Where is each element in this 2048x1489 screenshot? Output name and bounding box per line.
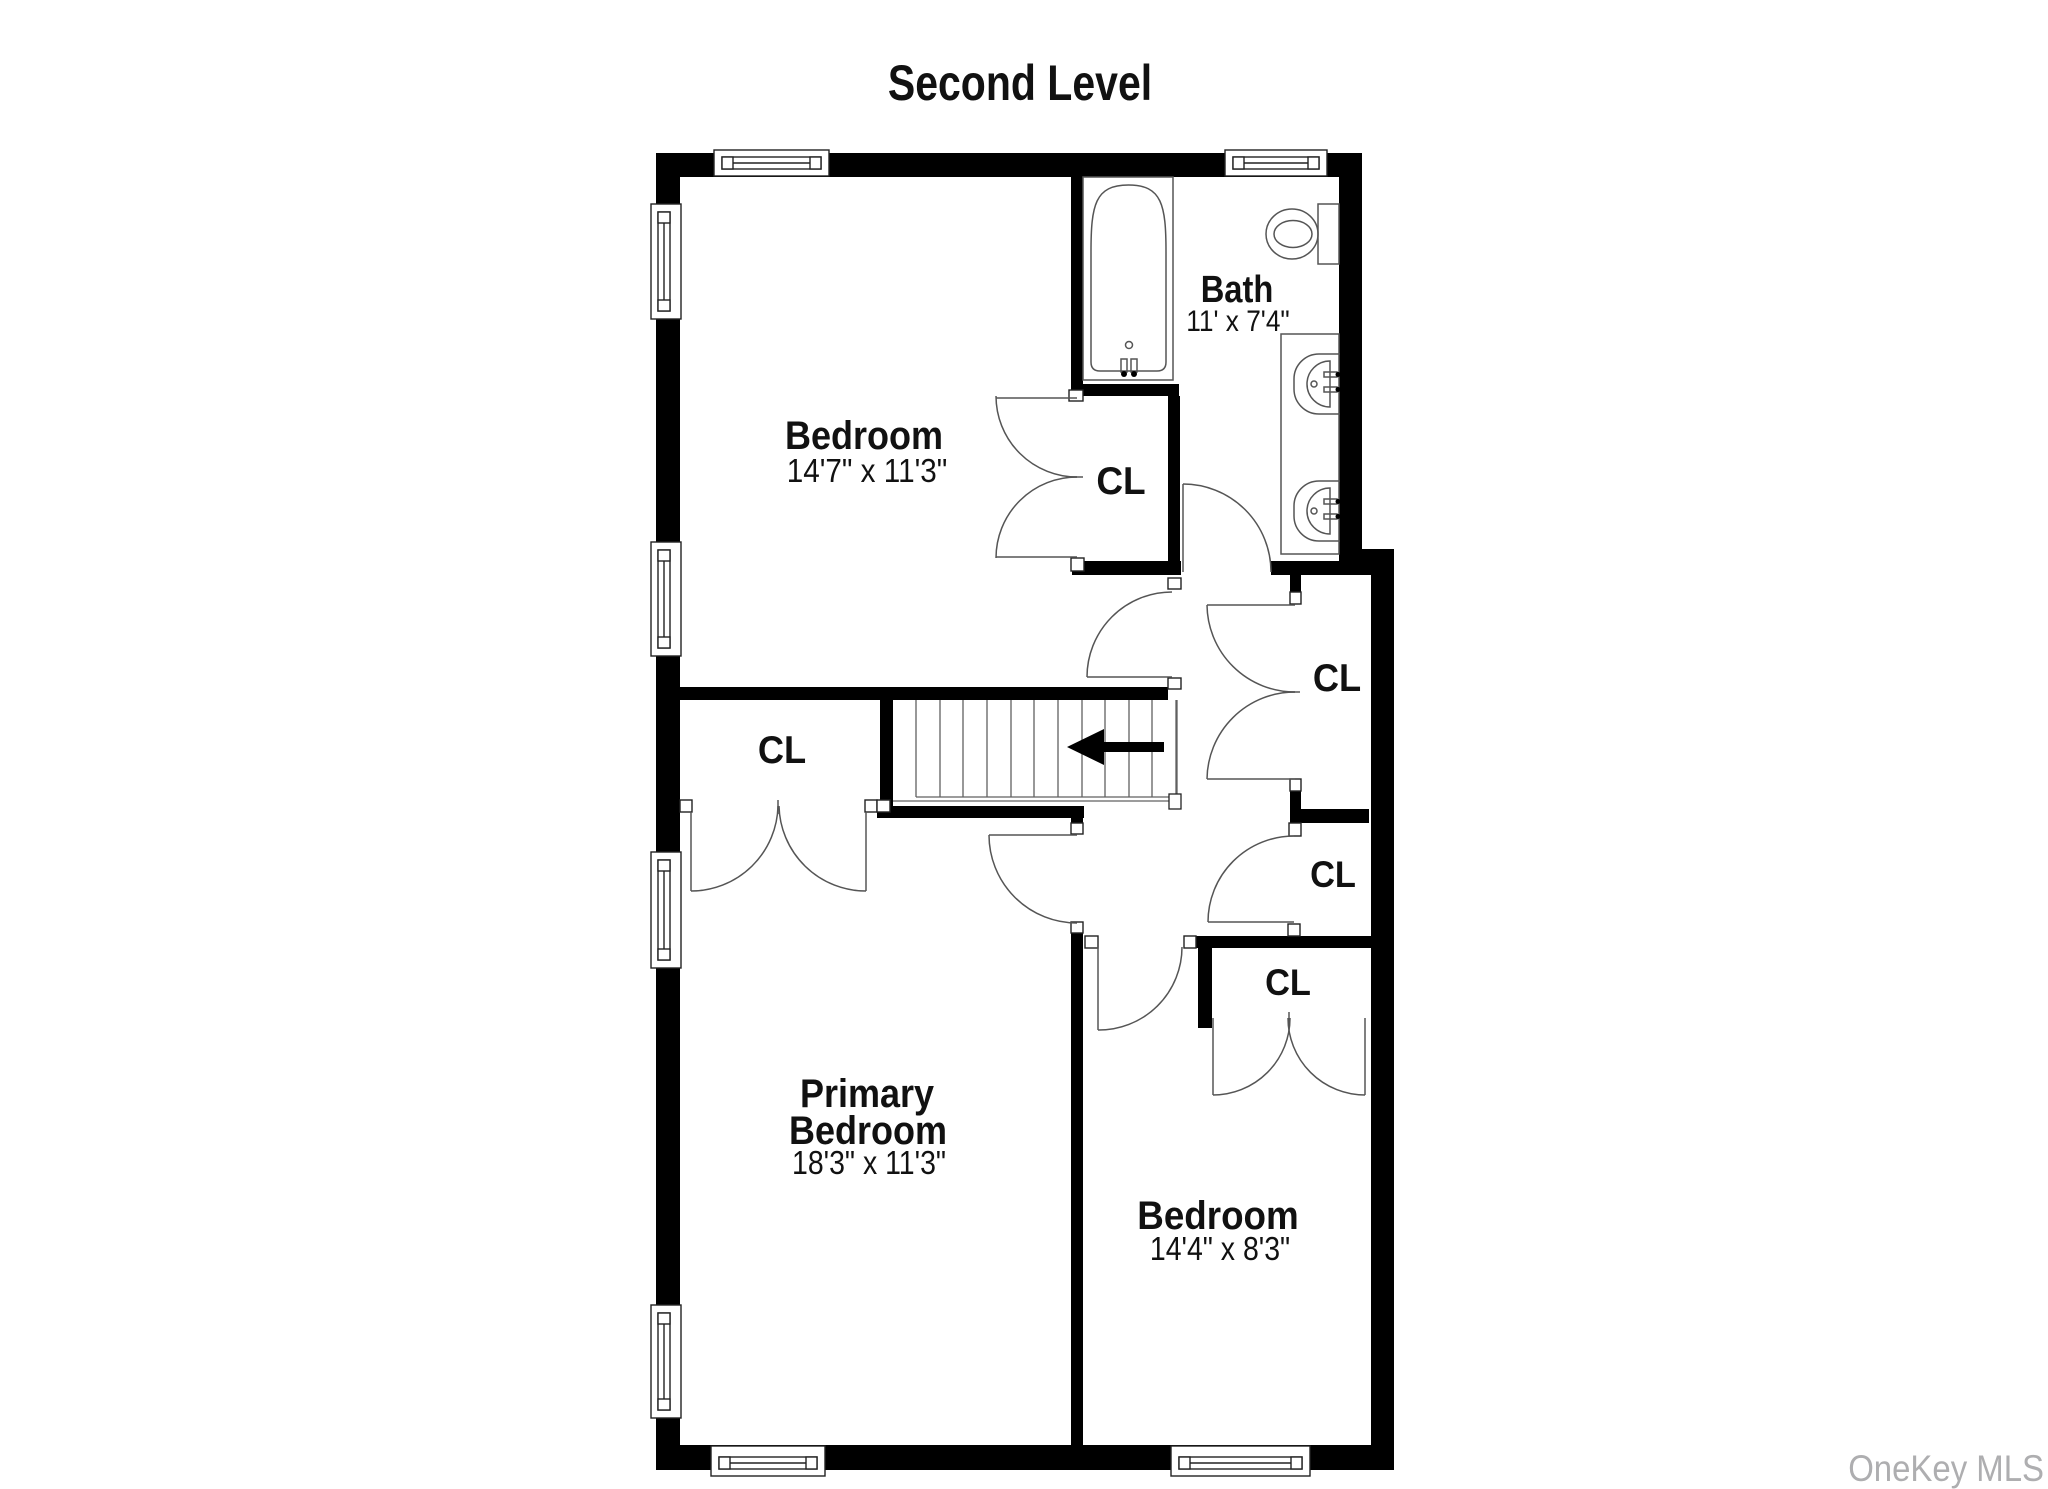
svg-text:CL: CL xyxy=(1313,656,1361,699)
svg-text:CL: CL xyxy=(1310,854,1356,895)
svg-text:14'7" x 11'3": 14'7" x 11'3" xyxy=(787,453,948,490)
svg-text:CL: CL xyxy=(758,728,806,771)
svg-text:Second Level: Second Level xyxy=(888,55,1152,111)
svg-text:CL: CL xyxy=(1096,460,1145,503)
svg-text:CL: CL xyxy=(1265,962,1311,1003)
svg-text:OneKey MLS: OneKey MLS xyxy=(1848,1448,2044,1489)
svg-text:11' x 7'4": 11' x 7'4" xyxy=(1186,305,1289,338)
svg-text:14'4" x 8'3": 14'4" x 8'3" xyxy=(1150,1230,1290,1268)
svg-text:18'3" x 11'3": 18'3" x 11'3" xyxy=(792,1144,946,1182)
